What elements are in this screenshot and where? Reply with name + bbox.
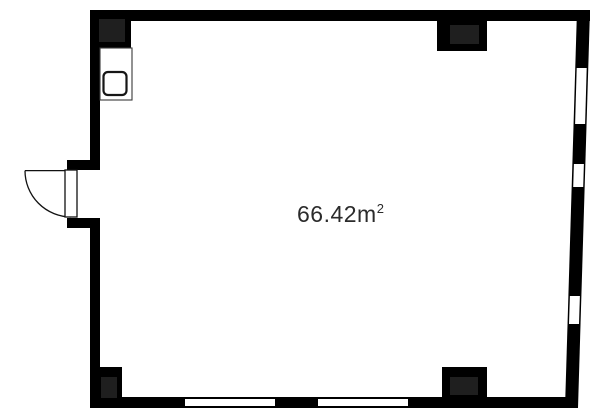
window-bottom-2 xyxy=(318,399,408,406)
pillar-inner-square xyxy=(450,25,479,44)
entry-door xyxy=(25,170,77,217)
window-right-2 xyxy=(573,164,584,187)
pillar-inner-square xyxy=(99,19,125,42)
pillar-inner-square xyxy=(101,377,117,398)
door-jamb-top xyxy=(67,160,100,170)
door-swing-arc xyxy=(25,171,71,217)
area-label: 66.42m2 xyxy=(297,201,384,227)
sink-fixture xyxy=(100,48,132,100)
window-right-1 xyxy=(575,68,587,124)
area-value: 66.42m xyxy=(297,201,377,227)
pillars xyxy=(90,12,487,408)
windows xyxy=(185,68,587,406)
floor-plan: 66.42m2 xyxy=(0,0,600,410)
area-exponent: 2 xyxy=(377,201,385,216)
floor-plan-canvas: 66.42m2 xyxy=(0,0,600,410)
window-right-3 xyxy=(569,296,580,324)
top-wall xyxy=(90,10,590,21)
window-bottom-1 xyxy=(185,399,275,406)
pillar-inner-square xyxy=(450,377,478,395)
sink-basin xyxy=(104,72,127,95)
door-leaf xyxy=(65,170,77,217)
